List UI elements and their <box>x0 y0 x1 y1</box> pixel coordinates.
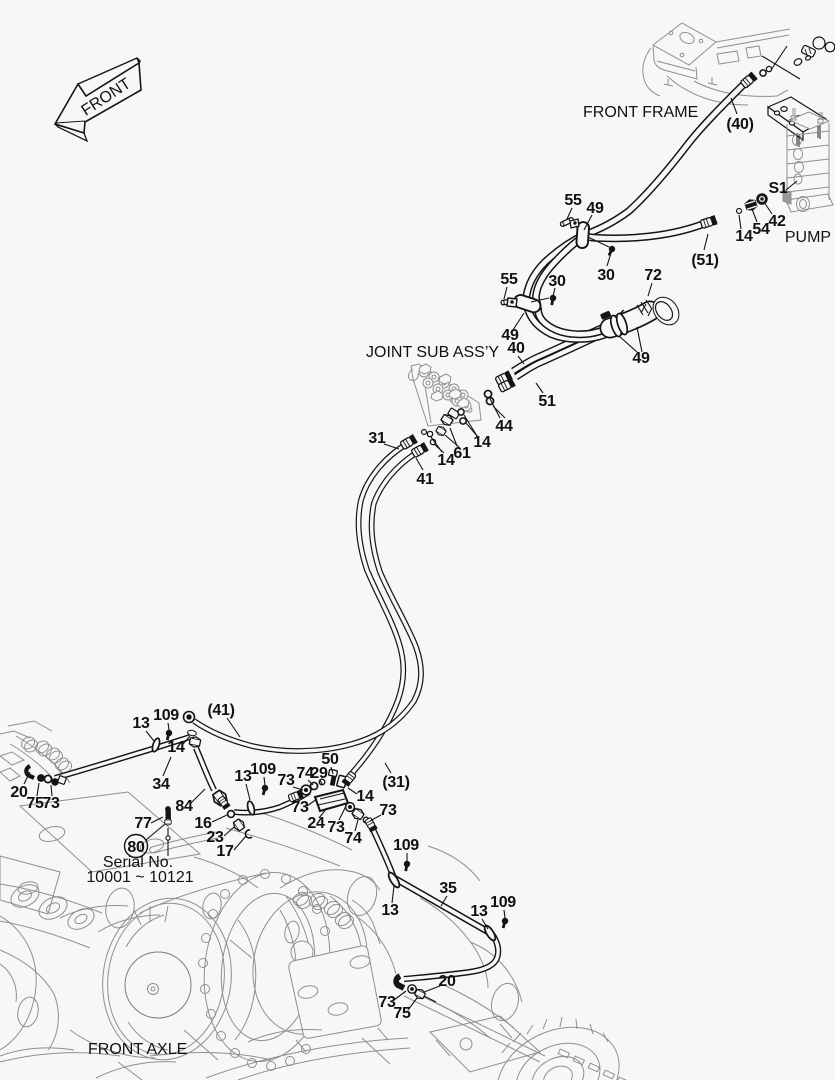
svg-text:14: 14 <box>356 788 374 805</box>
svg-text:40: 40 <box>507 340 525 357</box>
svg-text:(31): (31) <box>382 774 409 791</box>
svg-text:109: 109 <box>153 707 179 724</box>
svg-text:JOINT SUB ASS’Y: JOINT SUB ASS’Y <box>366 344 499 361</box>
svg-text:42: 42 <box>768 213 786 230</box>
svg-text:(41): (41) <box>207 702 234 719</box>
svg-text:84: 84 <box>175 798 193 815</box>
svg-text:49: 49 <box>586 200 604 217</box>
svg-text:75: 75 <box>393 1005 411 1022</box>
svg-text:20: 20 <box>10 784 28 801</box>
svg-text:S1: S1 <box>769 180 788 197</box>
svg-text:34: 34 <box>152 776 170 793</box>
svg-text:72: 72 <box>644 267 662 284</box>
svg-text:73: 73 <box>277 772 295 789</box>
svg-text:14: 14 <box>167 739 185 756</box>
svg-text:109: 109 <box>393 837 419 854</box>
svg-text:50: 50 <box>321 751 339 768</box>
svg-text:75: 75 <box>26 795 44 812</box>
svg-text:73: 73 <box>379 802 397 819</box>
svg-text:51: 51 <box>538 393 556 410</box>
svg-text:14: 14 <box>735 228 753 245</box>
svg-text:14: 14 <box>473 434 491 451</box>
svg-text:FRONT FRAME: FRONT FRAME <box>583 104 698 121</box>
svg-text:14: 14 <box>437 452 455 469</box>
svg-text:PUMP: PUMP <box>785 229 831 246</box>
svg-text:73: 73 <box>42 795 60 812</box>
svg-text:73: 73 <box>327 819 345 836</box>
svg-text:30: 30 <box>548 273 566 290</box>
svg-text:20: 20 <box>438 973 456 990</box>
svg-text:(51): (51) <box>691 252 718 269</box>
svg-text:74: 74 <box>344 830 362 847</box>
svg-text:55: 55 <box>500 271 518 288</box>
svg-text:54: 54 <box>752 221 770 238</box>
svg-text:24: 24 <box>307 815 325 832</box>
svg-text:FRONT AXLE: FRONT AXLE <box>88 1041 187 1058</box>
svg-text:109: 109 <box>250 761 276 778</box>
svg-text:55: 55 <box>564 192 582 209</box>
svg-text:109: 109 <box>490 894 516 911</box>
svg-text:13: 13 <box>470 903 488 920</box>
svg-text:13: 13 <box>132 715 150 732</box>
svg-text:49: 49 <box>632 350 650 367</box>
svg-text:17: 17 <box>216 843 234 860</box>
svg-text:(40): (40) <box>726 116 753 133</box>
svg-text:61: 61 <box>453 445 471 462</box>
svg-text:31: 31 <box>368 430 386 447</box>
svg-text:73: 73 <box>291 799 309 816</box>
svg-text:13: 13 <box>381 902 399 919</box>
svg-text:77: 77 <box>134 815 152 832</box>
svg-text:30: 30 <box>597 267 615 284</box>
svg-text:35: 35 <box>439 880 457 897</box>
svg-text:41: 41 <box>416 471 434 488</box>
svg-text:10001 ~ 10121: 10001 ~ 10121 <box>86 869 193 886</box>
svg-text:44: 44 <box>495 418 513 435</box>
